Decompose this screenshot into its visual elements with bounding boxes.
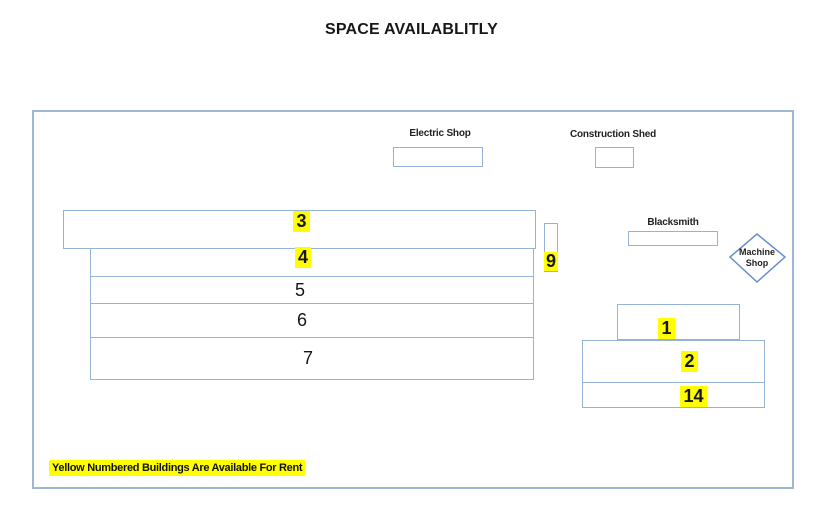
blacksmith-label: Blacksmith <box>623 217 723 228</box>
building-number: 5 <box>295 280 305 301</box>
construction-shed-label: Construction Shed <box>563 129 663 140</box>
blacksmith-box <box>628 231 718 246</box>
machine-shop-line2: Shop <box>746 258 769 269</box>
building-1: 1 <box>617 304 740 340</box>
building-number: 3 <box>293 211 309 232</box>
machine-shop-line1: Machine <box>739 247 775 258</box>
building-number: 1 <box>658 318 674 339</box>
building-number: 6 <box>297 310 307 331</box>
building-7: 7 <box>90 337 534 380</box>
construction-shed-box <box>595 147 634 168</box>
building-5: 5 <box>90 276 534 304</box>
building-14: 14 <box>582 382 765 408</box>
availability-note: Yellow Numbered Buildings Are Available … <box>49 460 305 476</box>
building-3: 3 <box>63 210 536 249</box>
building-number: 14 <box>680 386 706 407</box>
building-6: 6 <box>90 303 534 338</box>
building-4: 4 <box>90 248 534 277</box>
availability-note-wrap: Yellow Numbered Buildings Are Available … <box>49 458 305 476</box>
building-9: 9 <box>544 223 558 272</box>
electric-shop-box <box>393 147 483 167</box>
building-2: 2 <box>582 340 765 383</box>
page-title: SPACE AVAILABLITLY <box>0 21 823 39</box>
building-number: 2 <box>681 351 697 372</box>
building-number: 4 <box>295 247 311 268</box>
building-number: 9 <box>544 252 558 271</box>
machine-shop-label: Machine Shop <box>725 231 789 285</box>
electric-shop-label: Electric Shop <box>390 128 490 139</box>
space-availability-diagram: SPACE AVAILABLITLY Electric Shop Constru… <box>0 0 823 513</box>
building-number: 7 <box>303 348 313 369</box>
